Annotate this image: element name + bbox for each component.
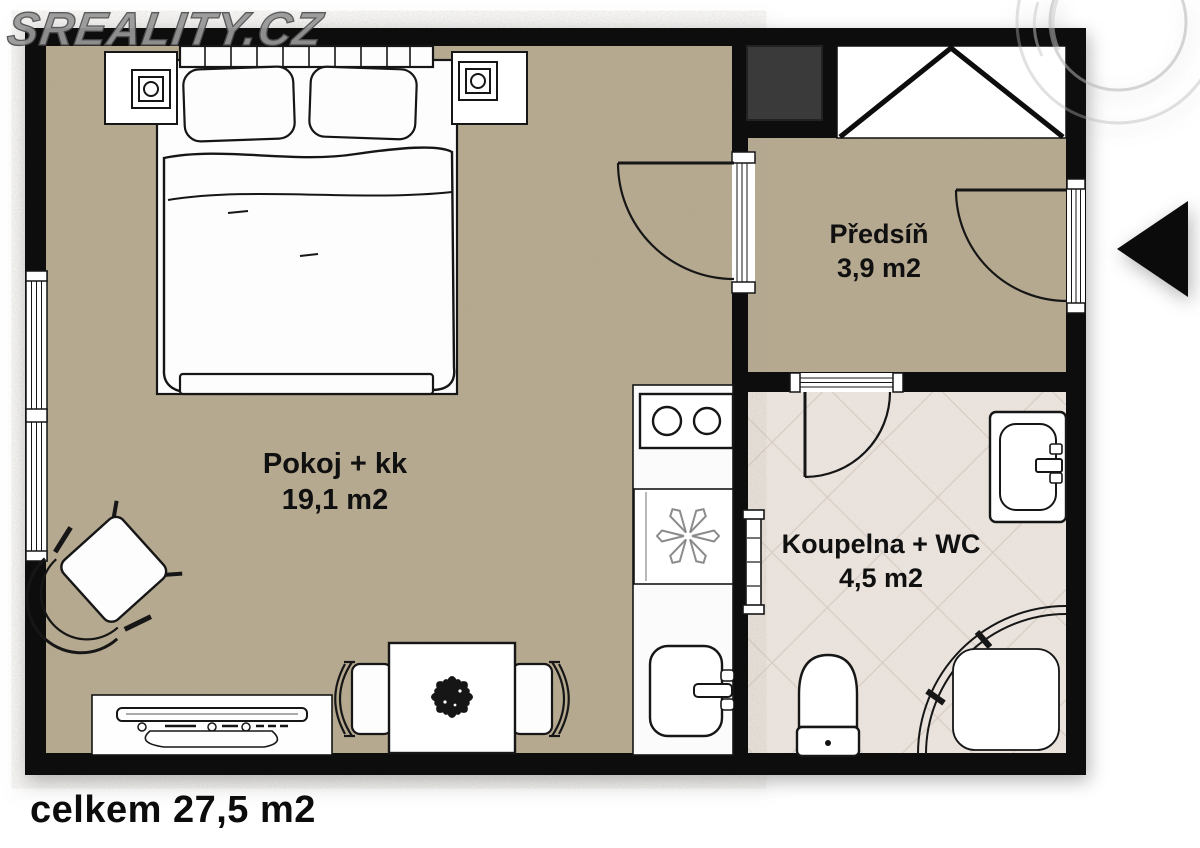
table-lamp-left	[132, 70, 170, 108]
room-label-pokoj: Pokoj + kk 19,1 m2	[185, 446, 485, 519]
toilet	[797, 655, 859, 756]
plant-centerpiece	[431, 676, 473, 718]
wall-right	[1066, 28, 1086, 775]
refrigerator	[634, 489, 733, 584]
total-area-label: celkem 27,5 m2	[30, 789, 316, 832]
washbasin	[990, 412, 1066, 522]
nightstand-left	[105, 52, 177, 124]
dining-table	[389, 643, 515, 753]
table-lamp-right	[459, 62, 497, 100]
floorplan: SREALITY.CZ Pokoj + kk 19,1 m2 Předsíň 3…	[0, 0, 1200, 848]
tv-sideboard	[92, 695, 332, 755]
cooktop	[640, 394, 733, 448]
room-label-predsin: Předsíň 3,9 m2	[728, 218, 1030, 286]
kitchen-counter	[633, 385, 734, 755]
double-bed	[157, 46, 457, 394]
room-name: Koupelna + WC	[728, 528, 1034, 562]
window	[26, 271, 47, 561]
entrance-arrow-icon	[1117, 201, 1188, 297]
room-area: 4,5 m2	[728, 562, 1034, 596]
pillow-right	[309, 66, 417, 140]
shower-tray	[953, 649, 1059, 750]
room-area: 19,1 m2	[185, 482, 485, 518]
room-label-koupelna: Koupelna + WC 4,5 m2	[728, 528, 1034, 596]
sreality-watermark: SREALITY.CZ	[4, 1, 327, 56]
room-name: Předsíň	[728, 218, 1030, 252]
room-area: 3,9 m2	[728, 252, 1030, 286]
kitchen-sink	[650, 646, 734, 736]
pillow-left	[183, 66, 295, 142]
duvet	[164, 148, 454, 393]
utility-shaft	[747, 46, 822, 120]
floorplan-svg	[0, 0, 1200, 848]
room-name: Pokoj + kk	[185, 446, 485, 482]
wall-bottom	[25, 753, 1086, 775]
built-in-wardrobe	[837, 46, 1066, 138]
bed-footboard	[180, 374, 433, 394]
nightstand-right	[452, 52, 527, 124]
